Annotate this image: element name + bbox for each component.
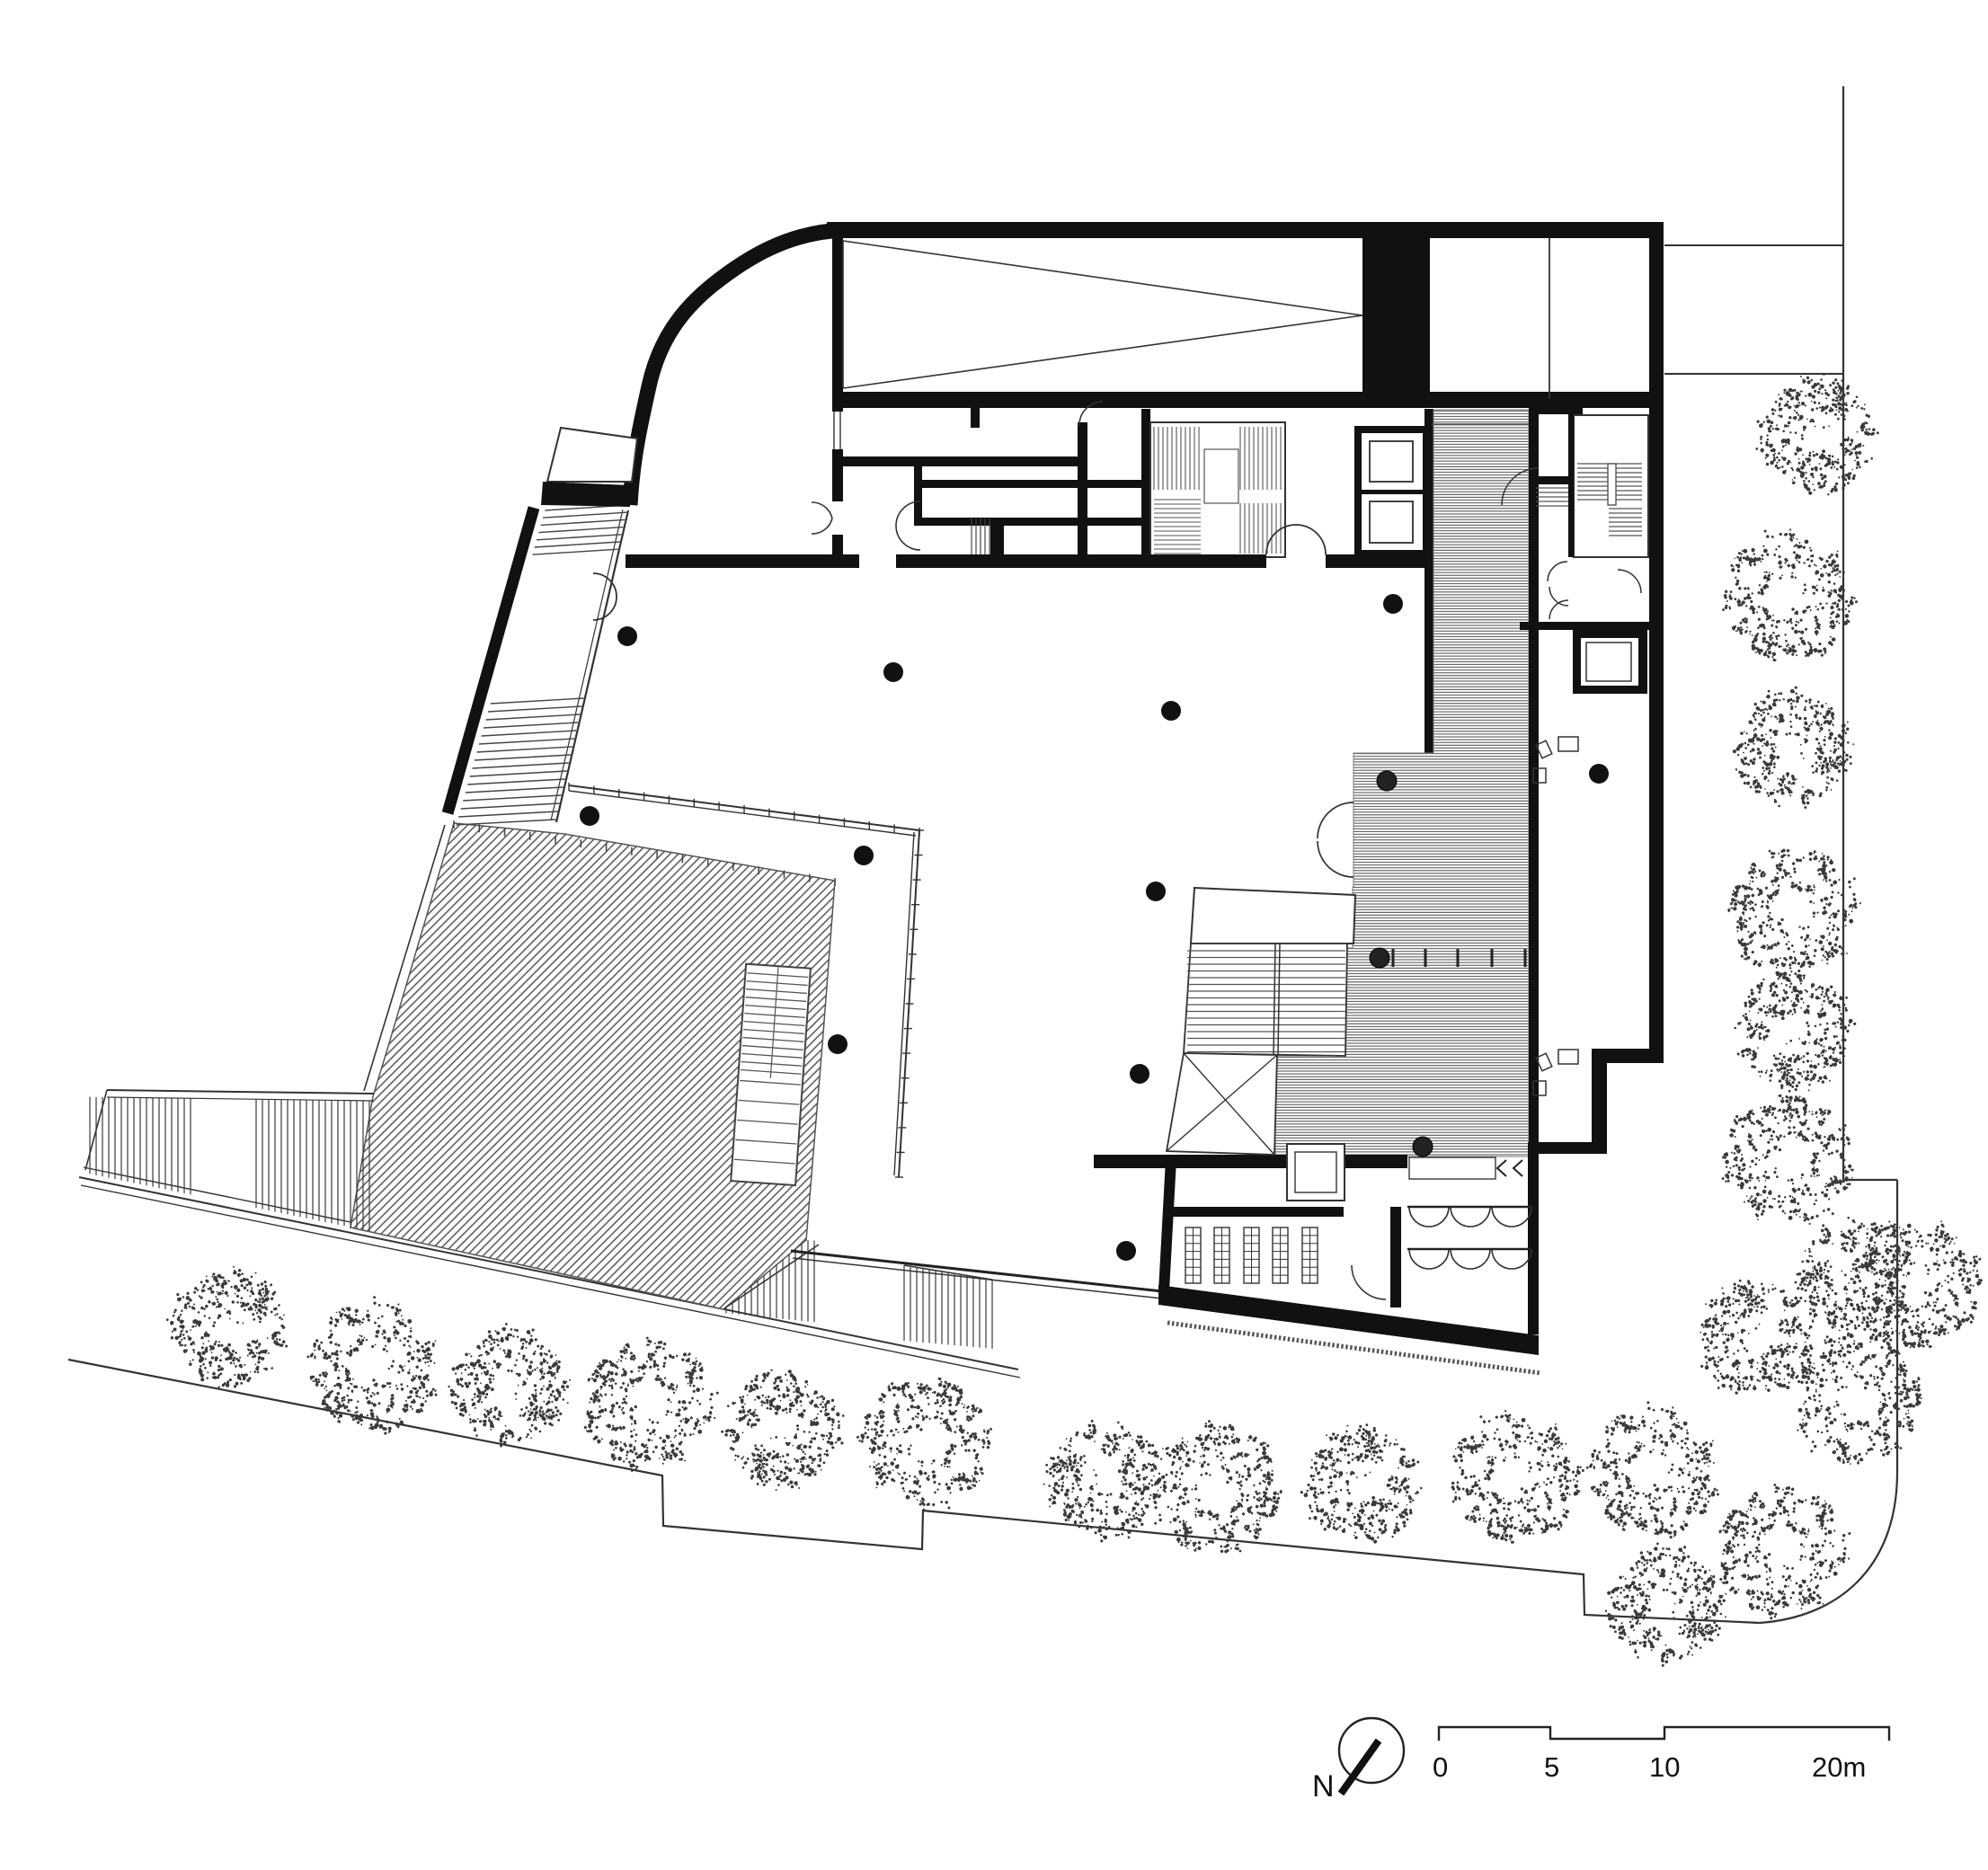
svg-text:20m: 20m [1812,1751,1866,1783]
svg-text:N: N [1312,1769,1335,1804]
svg-text:5: 5 [1544,1751,1559,1783]
svg-text:10: 10 [1649,1751,1680,1783]
svg-text:0: 0 [1433,1751,1448,1783]
